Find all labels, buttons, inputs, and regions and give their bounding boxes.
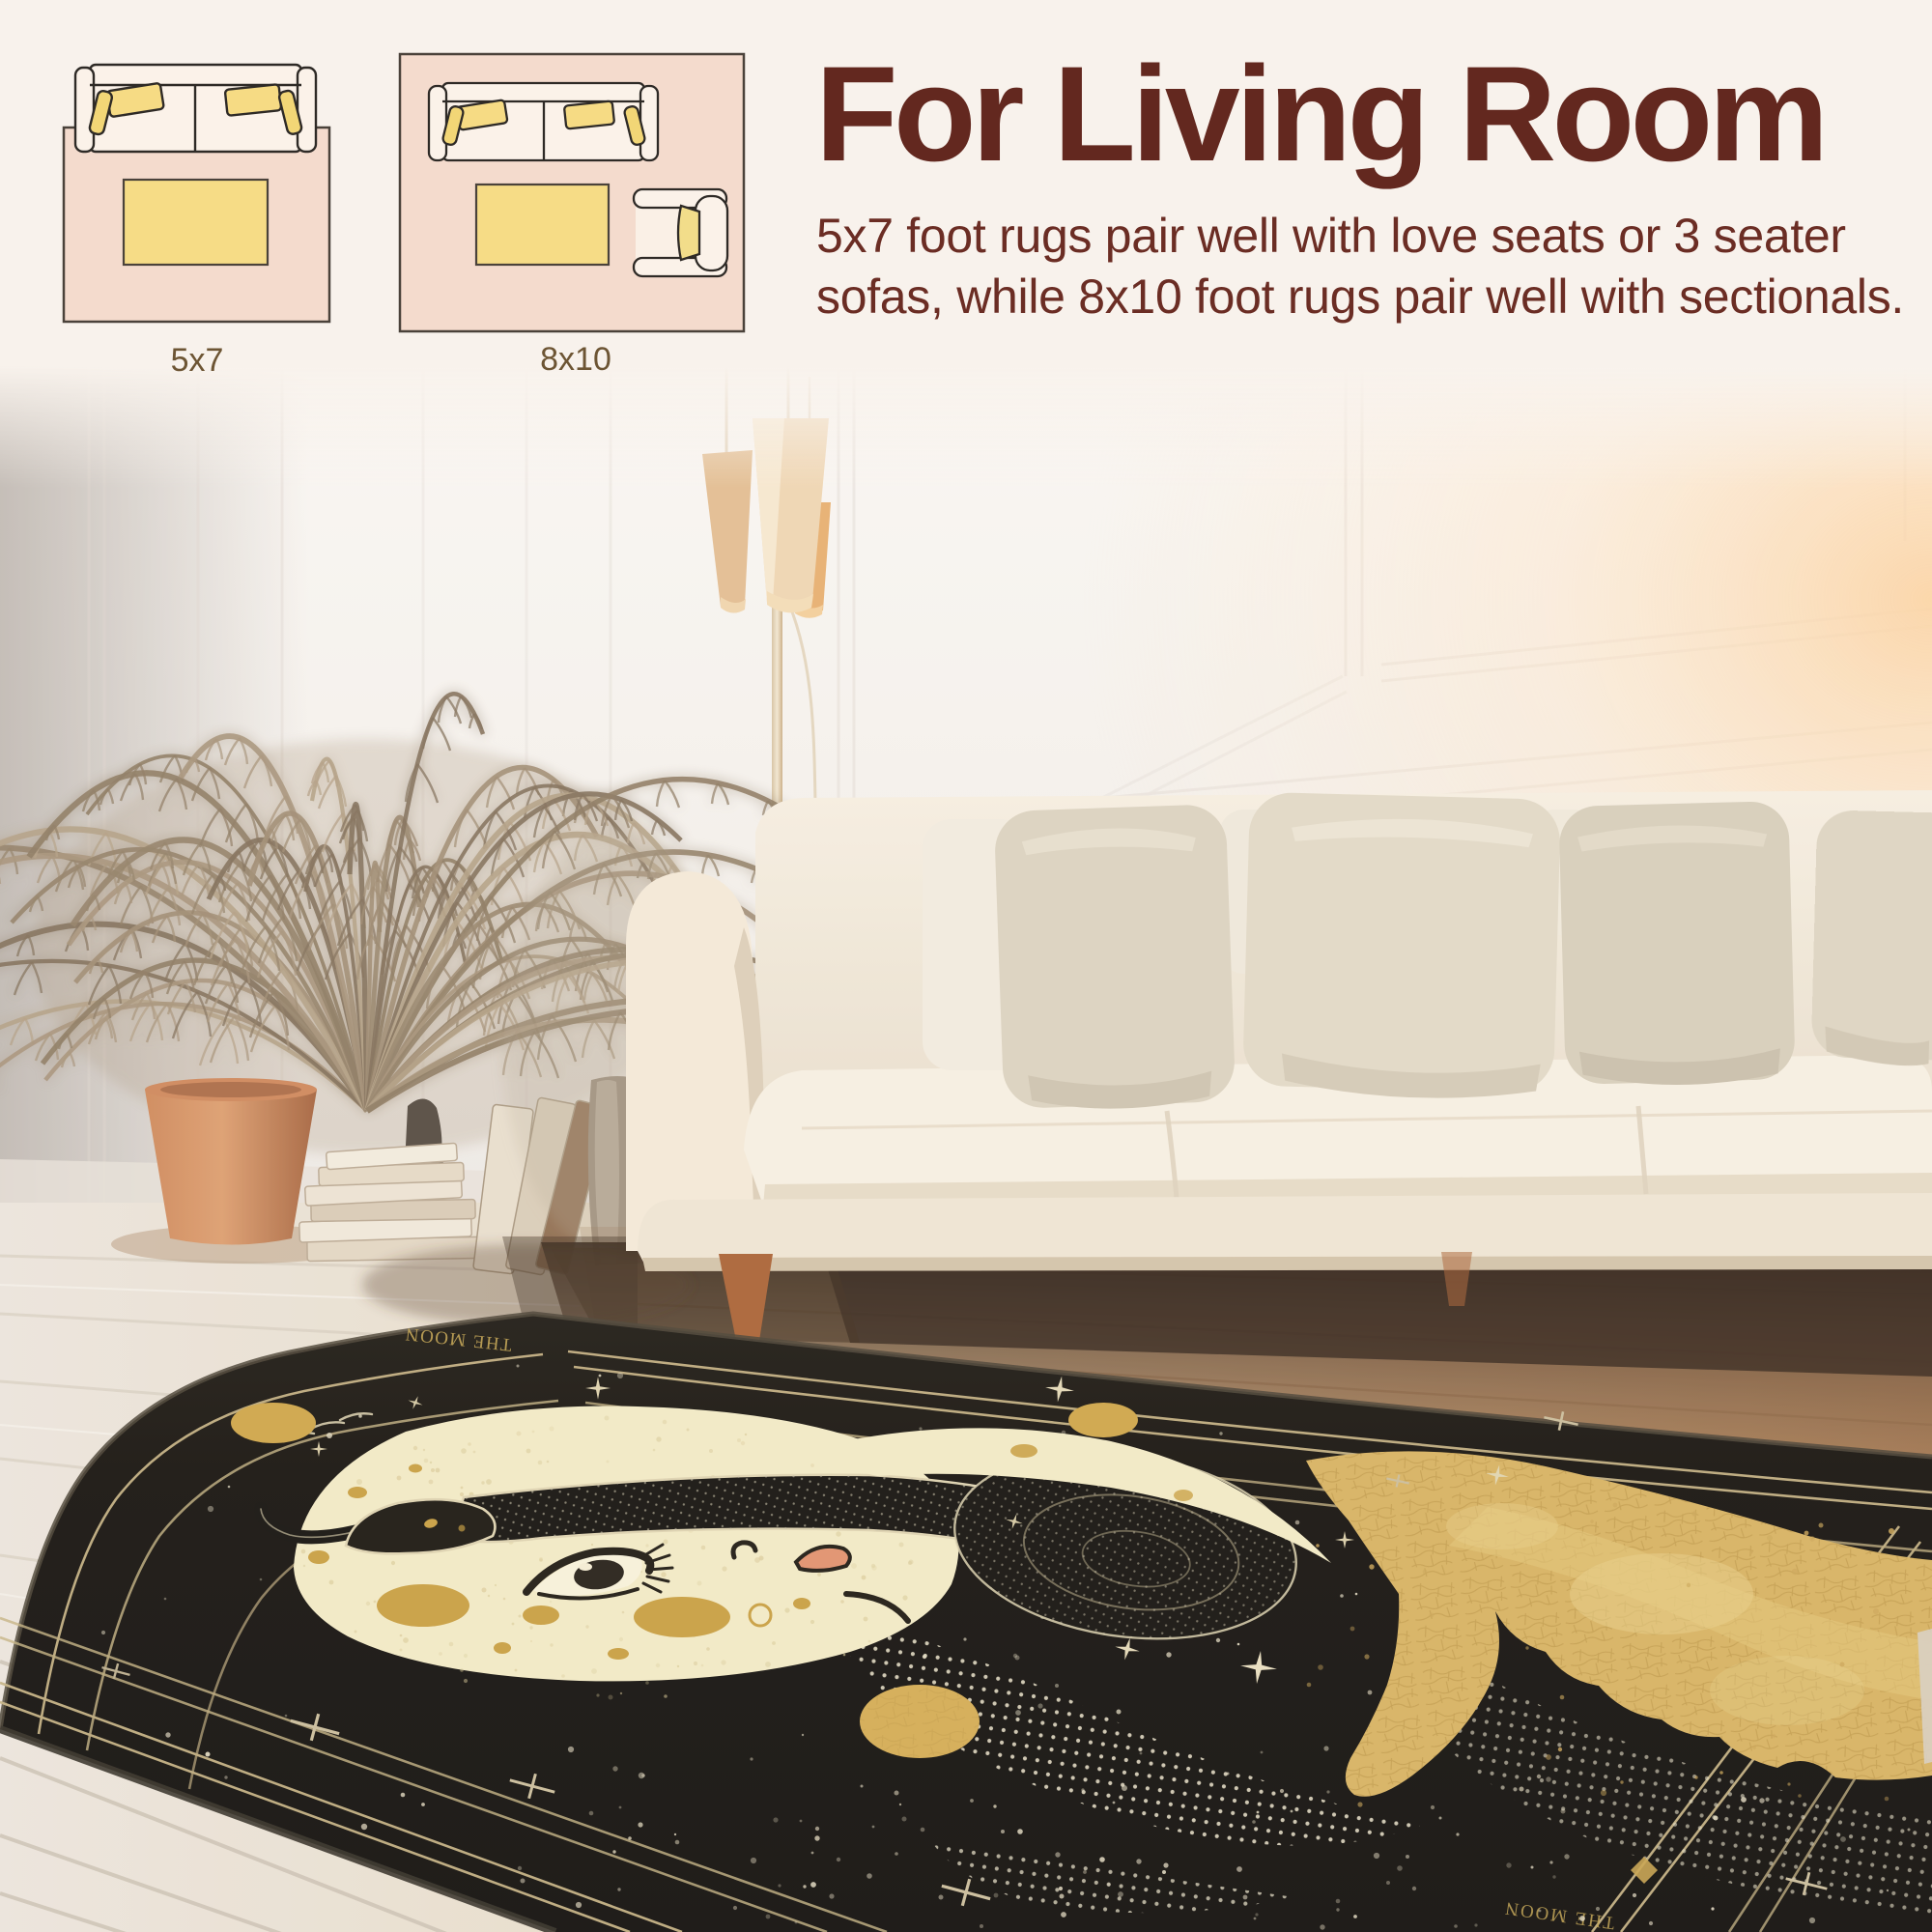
svg-text:8x10: 8x10 xyxy=(540,341,611,378)
svg-text:5x7: 5x7 xyxy=(171,342,224,379)
